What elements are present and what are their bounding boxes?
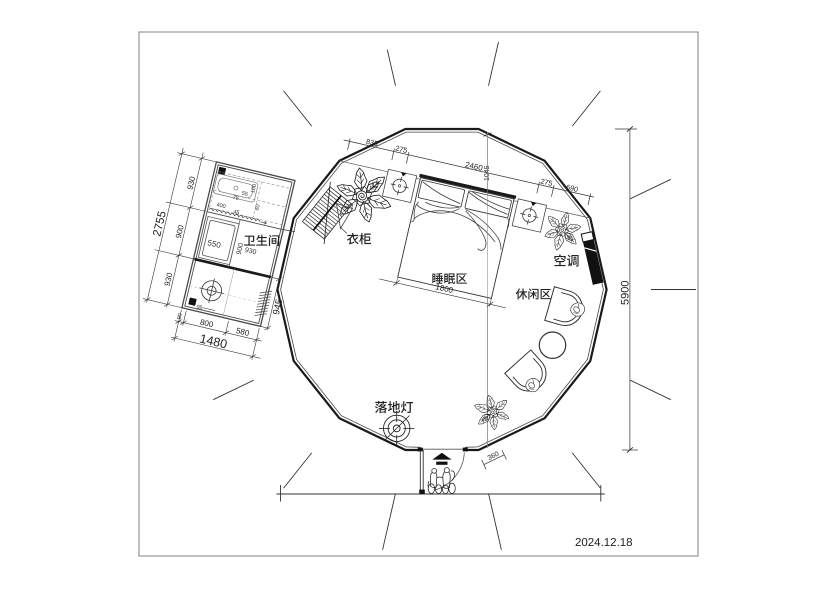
svg-text:900: 900 (174, 224, 186, 240)
svg-text:5900: 5900 (620, 281, 632, 305)
svg-text:275: 275 (395, 143, 409, 154)
svg-text:1480: 1480 (198, 332, 228, 352)
svg-text:690: 690 (565, 182, 579, 193)
svg-text:360: 360 (487, 451, 501, 462)
svg-text:2460: 2460 (464, 160, 484, 173)
svg-text:2024.12.18: 2024.12.18 (575, 537, 633, 549)
svg-text:90: 90 (177, 313, 184, 320)
svg-text:800: 800 (199, 318, 215, 330)
svg-text:580: 580 (235, 326, 251, 338)
svg-text:275: 275 (540, 177, 554, 188)
svg-text:2755: 2755 (151, 210, 169, 238)
svg-text:930: 930 (163, 271, 175, 287)
svg-text:930: 930 (185, 175, 197, 191)
